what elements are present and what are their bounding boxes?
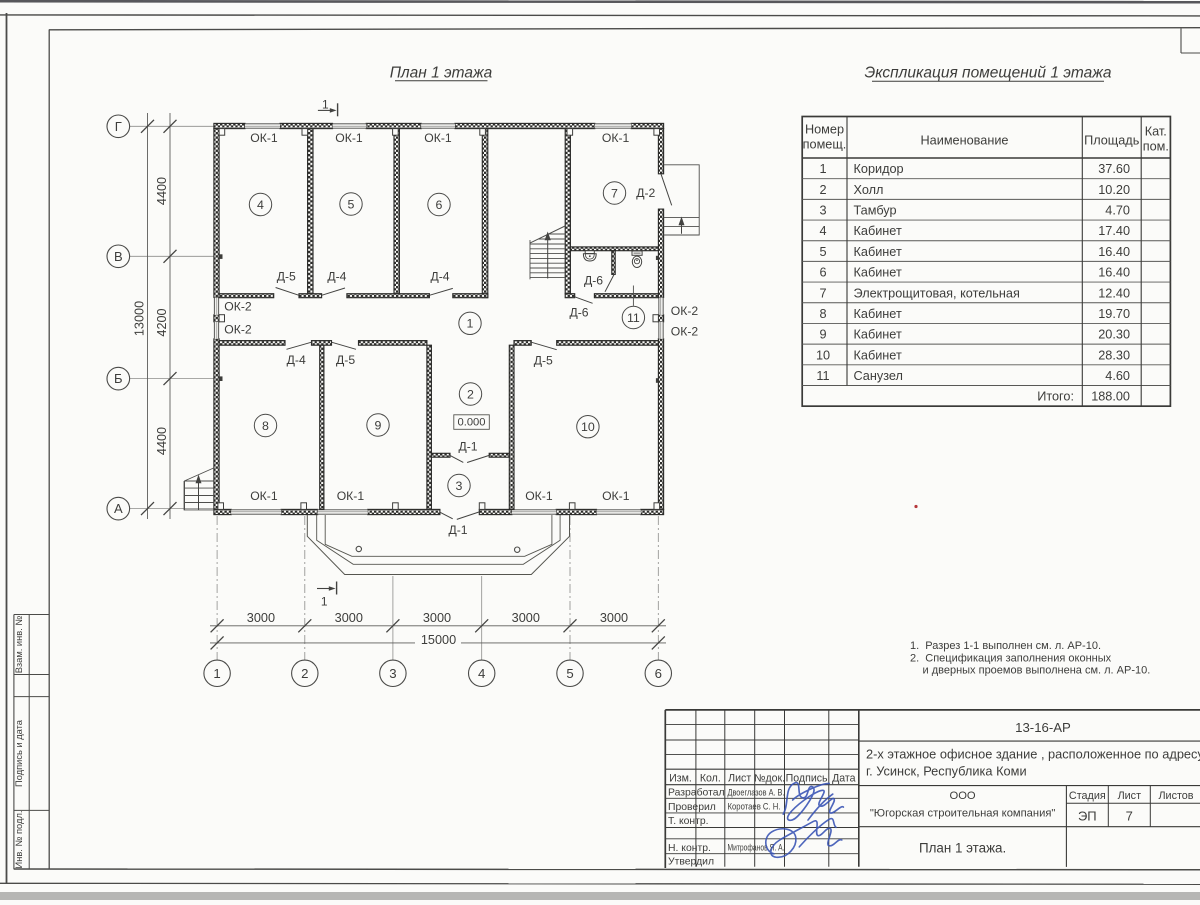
svg-text:20.30: 20.30 [1098,328,1130,342]
svg-text:Экспликация помещений 1 этажа: Экспликация помещений 1 этажа [864,65,1111,82]
svg-text:5: 5 [819,245,826,259]
svg-text:3: 3 [456,479,463,493]
svg-text:Д-4: Д-4 [287,353,306,367]
svg-text:2. Спецификация заполнения ок: 2. Спецификация заполнения оконных [910,653,1112,665]
svg-text:ОК-1: ОК-1 [525,489,553,503]
svg-text:помещ.: помещ. [803,138,847,152]
svg-text:1. Разрез 1-1 выполнен см. л.: 1. Разрез 1-1 выполнен см. л. АР-10. [910,640,1101,652]
svg-text:10: 10 [581,420,595,434]
svg-text:В: В [114,249,123,264]
svg-text:ЭП: ЭП [1078,809,1097,824]
svg-text:6: 6 [819,266,826,280]
svg-text:г. Усинск, Республика Коми: г. Усинск, Республика Коми [866,764,1027,779]
svg-text:Электрощитовая, котельная: Электрощитовая, котельная [854,286,1020,300]
svg-text:Г: Г [115,119,122,134]
svg-text:10: 10 [816,348,830,362]
svg-text:Д-4: Д-4 [430,269,449,283]
svg-text:2: 2 [819,183,826,197]
svg-text:Б: Б [114,371,123,386]
svg-text:Инв. № подл.: Инв. № подл. [14,811,24,869]
svg-text:7: 7 [819,286,826,300]
svg-text:9: 9 [819,328,826,342]
svg-text:4: 4 [478,666,485,681]
svg-text:16.40: 16.40 [1098,266,1130,280]
svg-text:Лист: Лист [1118,790,1142,802]
svg-text:Подпись и дата: Подпись и дата [14,719,24,787]
svg-text:Листов: Листов [1158,790,1193,802]
svg-text:16.40: 16.40 [1098,245,1130,259]
svg-text:Д-6: Д-6 [569,306,588,320]
svg-text:0.000: 0.000 [458,417,486,429]
svg-text:28.30: 28.30 [1098,348,1130,362]
svg-text:Митрофанов Я. А.: Митрофанов Я. А. [728,843,785,853]
svg-text:Д-5: Д-5 [336,353,355,367]
svg-text:Д-1: Д-1 [458,439,477,453]
svg-text:ОК-2: ОК-2 [671,304,699,318]
svg-text:11: 11 [816,369,829,383]
svg-text:Д-5: Д-5 [277,269,296,283]
svg-text:2: 2 [467,387,474,401]
svg-text:Д-4: Д-4 [327,269,346,283]
svg-text:Проверил: Проверил [668,802,716,813]
svg-text:Дата: Дата [832,772,856,784]
svg-text:6: 6 [436,198,443,212]
svg-text:19.70: 19.70 [1098,307,1130,321]
svg-text:12.40: 12.40 [1098,286,1130,300]
svg-text:Стадия: Стадия [1069,790,1106,802]
svg-text:А: А [114,501,123,516]
svg-text:7: 7 [1126,809,1133,824]
svg-text:2-х этажное офисное здание , р: 2-х этажное офисное здание , расположенн… [866,747,1200,762]
svg-text:188.00: 188.00 [1091,390,1130,404]
svg-text:1: 1 [819,162,826,176]
svg-text:6: 6 [655,666,662,681]
svg-text:3000: 3000 [247,611,275,625]
svg-text:ОК-1: ОК-1 [250,489,278,503]
svg-text:3: 3 [819,204,826,218]
svg-text:Коридор: Коридор [854,162,904,176]
svg-text:Кабинет: Кабинет [854,245,902,259]
svg-text:"Югорская строительная компани: "Югорская строительная компания" [870,808,1056,820]
svg-text:3000: 3000 [423,611,451,625]
svg-text:3: 3 [389,666,396,681]
svg-text:Разработал: Разработал [668,787,725,799]
svg-text:Д-1: Д-1 [448,523,467,537]
svg-text:Итого:: Итого: [1037,390,1074,404]
svg-text:ОК-2: ОК-2 [671,325,699,339]
svg-text:4: 4 [257,198,264,212]
svg-text:1: 1 [322,98,329,112]
svg-text:План 1 этажа.: План 1 этажа. [919,841,1006,856]
svg-text:Кол.: Кол. [700,772,721,784]
svg-text:ОК-1: ОК-1 [335,131,363,145]
svg-text:4200: 4200 [155,308,169,336]
svg-text:11: 11 [627,311,640,325]
svg-text:Т. контр.: Т. контр. [668,816,709,827]
svg-text:37.60: 37.60 [1098,162,1130,176]
svg-text:Утвердил: Утвердил [668,857,714,868]
svg-text:4400: 4400 [155,427,169,455]
svg-text:Д-5: Д-5 [534,354,553,368]
svg-text:Санузел: Санузел [854,369,903,383]
svg-text:ОК-1: ОК-1 [250,131,278,145]
svg-text:Кабинет: Кабинет [854,224,902,238]
svg-text:13000: 13000 [133,301,147,336]
svg-text:5: 5 [566,666,573,681]
svg-text:8: 8 [819,307,826,321]
svg-text:Н. контр.: Н. контр. [668,843,711,854]
svg-text:1: 1 [321,595,328,609]
svg-text:13-16-АР: 13-16-АР [1015,720,1071,735]
svg-text:3000: 3000 [335,611,363,625]
svg-text:ОК-1: ОК-1 [424,131,452,145]
svg-text:17.40: 17.40 [1098,224,1130,238]
svg-text:ООО: ООО [950,790,976,802]
svg-text:Лист: Лист [728,772,751,784]
svg-text:Тамбур: Тамбур [854,204,897,218]
svg-text:Кат.: Кат. [1145,125,1167,139]
svg-text:Кабинет: Кабинет [854,328,902,342]
svg-text:Двоеглазов А. В.: Двоеглазов А. В. [728,787,785,797]
svg-text:3000: 3000 [512,611,540,625]
svg-text:Номер: Номер [805,123,844,137]
svg-text:Д-2: Д-2 [636,186,655,200]
svg-text:9: 9 [375,418,382,432]
svg-text:ОК-1: ОК-1 [602,489,630,503]
svg-text:Холл: Холл [854,183,884,197]
svg-text:Коротаев С. Н.: Коротаев С. Н. [728,802,781,812]
svg-text:ОК-2: ОК-2 [224,300,252,314]
svg-text:№док.: №док. [754,772,785,784]
svg-text:1: 1 [213,666,220,681]
svg-text:Кабинет: Кабинет [854,348,902,362]
svg-text:План 1 этажа: План 1 этажа [390,65,493,82]
svg-text:5: 5 [348,197,355,211]
svg-text:Подпись: Подпись [786,772,828,784]
svg-text:ОК-2: ОК-2 [224,323,252,337]
svg-text:10.20: 10.20 [1098,183,1130,197]
svg-text:8: 8 [262,419,269,433]
svg-text:2: 2 [301,666,308,681]
svg-text:7: 7 [611,186,618,200]
svg-text:Взам. инв. №: Взам. инв. № [14,616,24,674]
svg-text:Изм.: Изм. [669,772,692,784]
svg-text:4: 4 [819,224,826,238]
svg-text:15000: 15000 [421,633,456,647]
svg-text:и дверных проемов выполнена см: и дверных проемов выполнена см. л. АР-10… [923,665,1151,677]
svg-text:пом.: пом. [1143,140,1169,154]
svg-text:Площадь: Площадь [1084,134,1140,148]
svg-text:3000: 3000 [600,611,628,625]
svg-text:Кабинет: Кабинет [854,266,902,280]
svg-text:Кабинет: Кабинет [854,307,902,321]
svg-text:1: 1 [467,317,474,331]
svg-text:ОК-1: ОК-1 [602,131,630,145]
svg-text:Наименование: Наименование [921,134,1009,148]
svg-text:ОК-1: ОК-1 [337,489,365,503]
svg-text:4400: 4400 [155,177,169,205]
svg-text:4.70: 4.70 [1105,204,1130,218]
svg-text:Д-6: Д-6 [584,274,603,288]
svg-text:4.60: 4.60 [1105,369,1130,383]
